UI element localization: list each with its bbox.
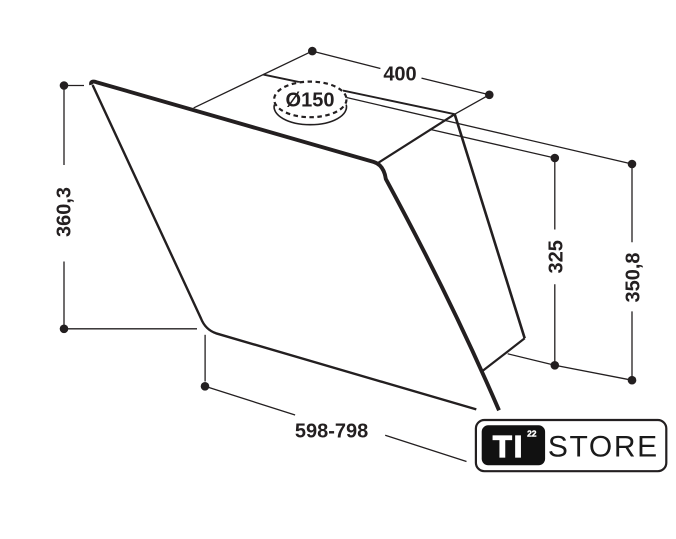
svg-text:22: 22 bbox=[527, 429, 537, 439]
svg-text:400: 400 bbox=[383, 64, 416, 86]
svg-text:350,8: 350,8 bbox=[623, 252, 645, 302]
svg-text:325: 325 bbox=[545, 240, 567, 273]
svg-text:STORE: STORE bbox=[548, 431, 659, 464]
svg-text:598-798: 598-798 bbox=[295, 420, 368, 442]
svg-text:360,3: 360,3 bbox=[54, 187, 76, 237]
svg-text:TI: TI bbox=[493, 429, 525, 464]
svg-text:Ø150: Ø150 bbox=[286, 90, 335, 112]
